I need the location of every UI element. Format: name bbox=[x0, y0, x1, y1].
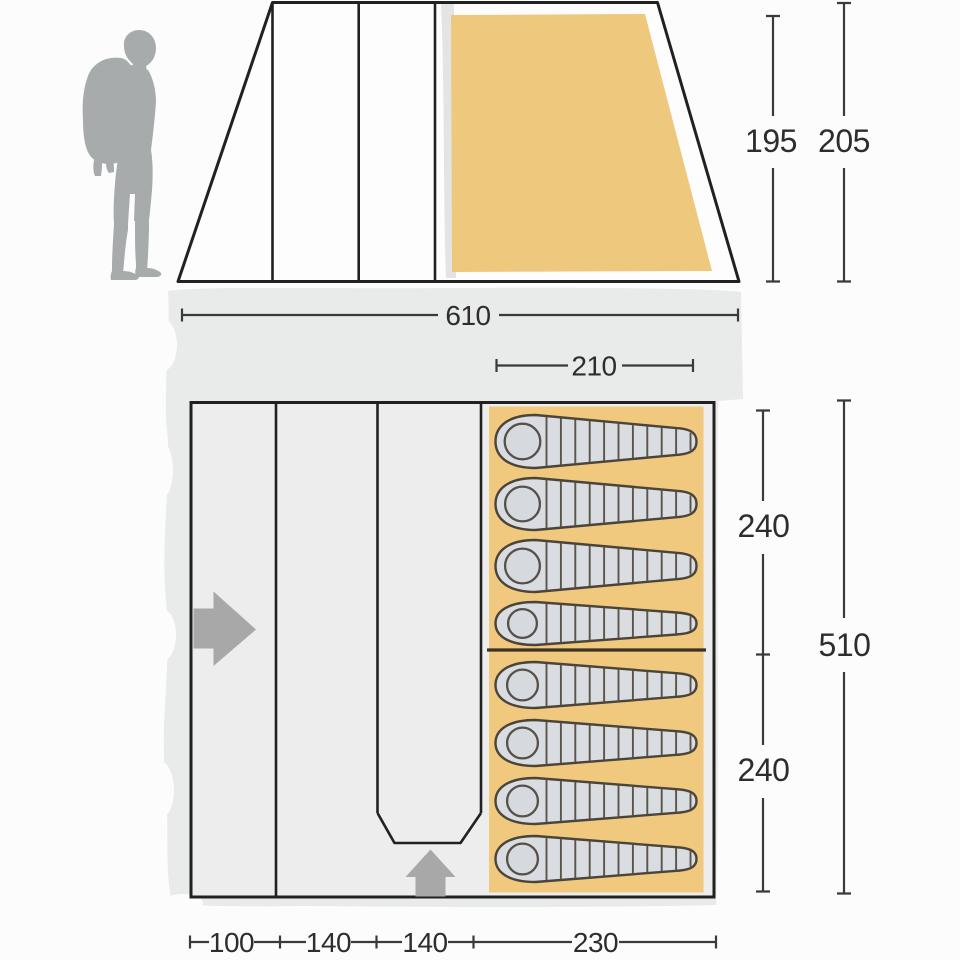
svg-text:195: 195 bbox=[745, 123, 797, 159]
svg-text:610: 610 bbox=[445, 300, 490, 331]
svg-text:240: 240 bbox=[738, 752, 790, 788]
svg-text:230: 230 bbox=[573, 927, 618, 958]
svg-text:140: 140 bbox=[306, 927, 351, 958]
svg-text:100: 100 bbox=[209, 927, 254, 958]
svg-text:140: 140 bbox=[402, 927, 447, 958]
svg-text:210: 210 bbox=[571, 351, 616, 382]
svg-text:510: 510 bbox=[819, 627, 871, 663]
svg-text:205: 205 bbox=[818, 123, 870, 159]
svg-text:240: 240 bbox=[738, 508, 790, 544]
